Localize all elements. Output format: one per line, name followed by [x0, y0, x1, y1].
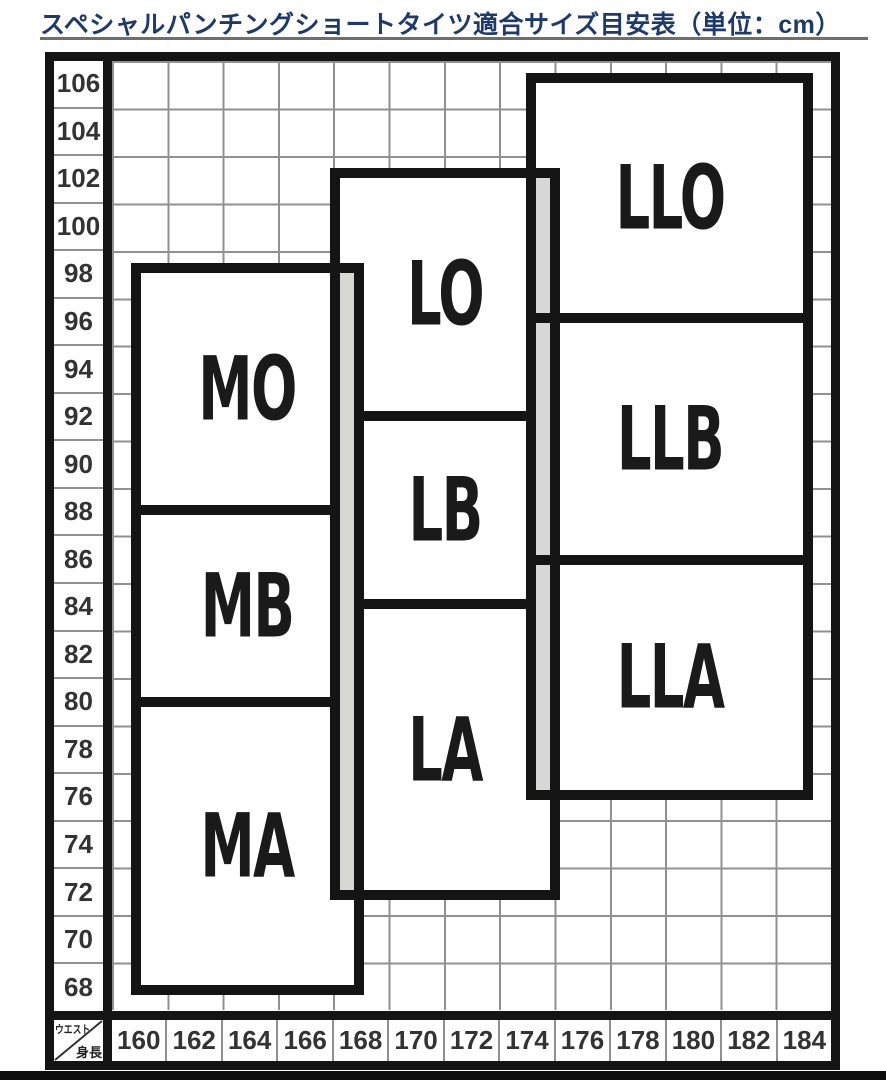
- size-chart-page: スペシャルパンチングショートタイツ適合サイズ目安表（単位：cm） 1061041…: [0, 0, 886, 1080]
- page-title: スペシャルパンチングショートタイツ適合サイズ目安表（単位：cm）: [40, 5, 860, 37]
- bottom-edge-bar: [0, 1071, 886, 1080]
- title-rule: [40, 37, 868, 40]
- table-outer-border: [45, 52, 840, 1070]
